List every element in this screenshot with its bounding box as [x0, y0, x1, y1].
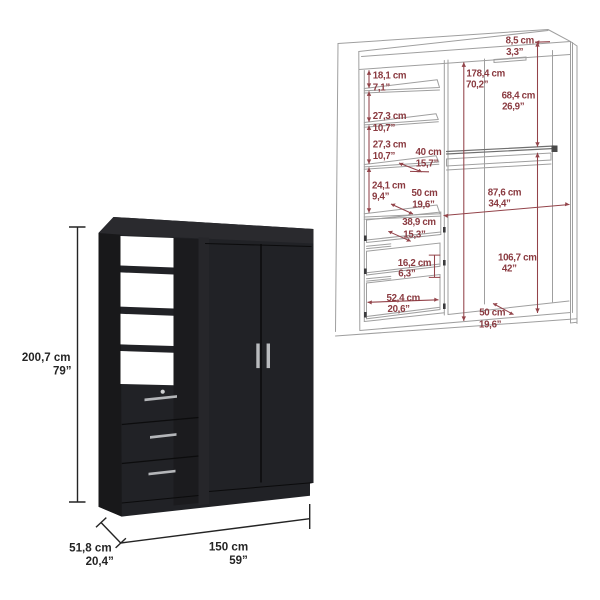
svg-text:79”: 79” [53, 366, 72, 378]
svg-text:50 cm: 50 cm [412, 188, 439, 199]
svg-text:19,6”: 19,6” [412, 200, 435, 211]
svg-text:16,2 cm: 16,2 cm [398, 258, 432, 269]
svg-text:10,7”: 10,7” [373, 151, 396, 162]
svg-text:178,4 cm: 178,4 cm [466, 68, 505, 79]
svg-text:68,4 cm: 68,4 cm [502, 91, 536, 102]
svg-text:50 cm: 50 cm [479, 308, 506, 319]
svg-text:70,2”: 70,2” [466, 80, 489, 91]
svg-text:38,9 cm: 38,9 cm [402, 217, 436, 228]
svg-text:87,6 cm: 87,6 cm [488, 188, 522, 199]
svg-text:27,3 cm: 27,3 cm [373, 139, 407, 150]
svg-text:40 cm: 40 cm [416, 147, 443, 158]
svg-text:3,3”: 3,3” [506, 47, 524, 58]
svg-text:24,1 cm: 24,1 cm [372, 180, 406, 191]
svg-text:42”: 42” [502, 263, 517, 274]
svg-text:26,9”: 26,9” [502, 102, 525, 113]
svg-text:200,7 cm: 200,7 cm [22, 352, 71, 364]
svg-text:51,8 cm: 51,8 cm [69, 542, 112, 555]
svg-text:6,3”: 6,3” [398, 269, 416, 280]
svg-text:9,4”: 9,4” [372, 192, 390, 203]
svg-text:8,5 cm: 8,5 cm [506, 35, 535, 46]
svg-text:19,6”: 19,6” [479, 320, 502, 331]
svg-text:7,1”: 7,1” [373, 82, 391, 93]
svg-text:10,7”: 10,7” [373, 123, 396, 134]
svg-text:15,3”: 15,3” [403, 230, 426, 241]
svg-text:27,3 cm: 27,3 cm [373, 111, 407, 122]
svg-text:59”: 59” [229, 555, 248, 567]
svg-text:20,6”: 20,6” [388, 304, 411, 315]
svg-text:106,7 cm: 106,7 cm [498, 252, 537, 263]
svg-text:52,4 cm: 52,4 cm [387, 293, 421, 304]
svg-text:150 cm: 150 cm [209, 541, 248, 554]
svg-text:18,1 cm: 18,1 cm [373, 70, 407, 81]
svg-text:20,4”: 20,4” [86, 556, 114, 568]
svg-text:15,7”: 15,7” [416, 159, 439, 170]
svg-text:34,4”: 34,4” [488, 198, 511, 209]
